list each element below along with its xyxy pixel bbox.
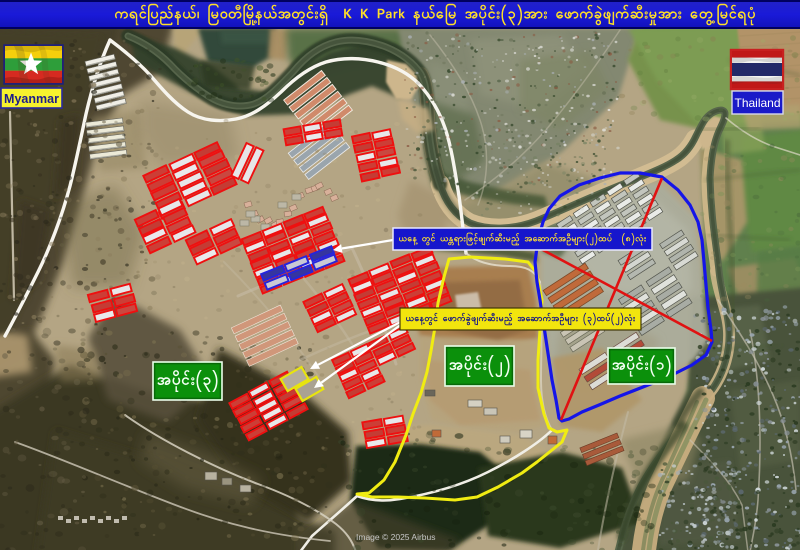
svg-text:Myanmar: Myanmar (4, 92, 59, 106)
svg-text:Thailand: Thailand (734, 96, 780, 110)
svg-text:Image © 2025 Airbus: Image © 2025 Airbus (356, 532, 436, 542)
